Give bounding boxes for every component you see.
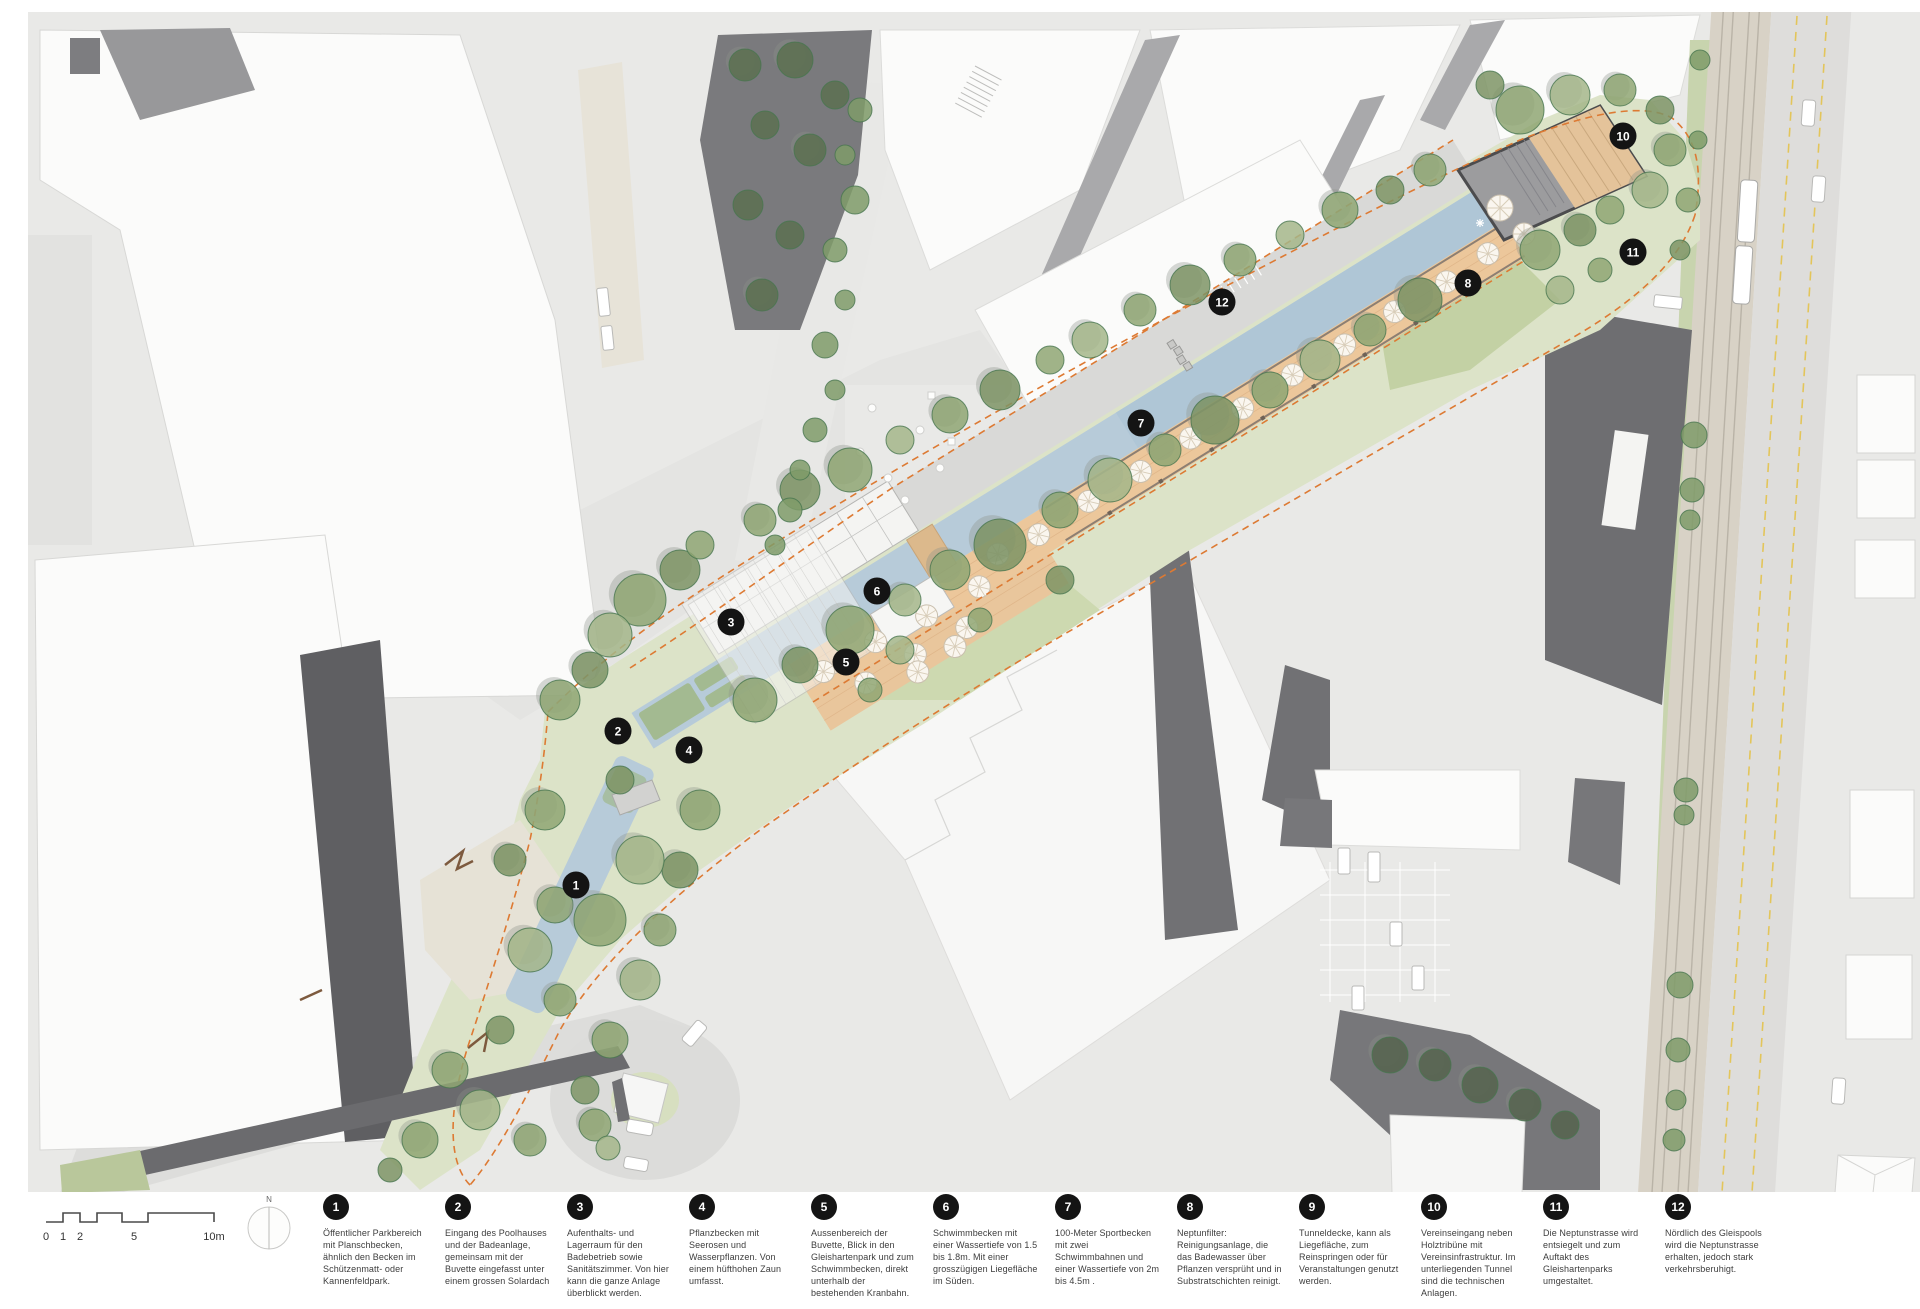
- map-marker-1: 1: [563, 872, 590, 899]
- legend-item-7: 7 100-Meter Sportbecken mit zwei Schwimm…: [1055, 1194, 1161, 1287]
- legend-item-number: 6: [933, 1194, 959, 1220]
- scale-bar: 0 1 2 5 10m: [38, 1192, 238, 1252]
- building-se-top: [1315, 770, 1520, 850]
- map-marker-4: 4: [676, 737, 703, 764]
- building-northwest-roof-block: [70, 38, 100, 74]
- legend-item-text: Aussenbereich der Buvette, Blick in den …: [811, 1227, 917, 1299]
- legend-item-text: Schwimmbecken mit einer Wassertiefe von …: [933, 1227, 1039, 1287]
- legend-item-3: 3 Aufenthalts- und Lagerraum für den Bad…: [567, 1194, 673, 1299]
- legend-item-text: Eingang des Poolhauses und der Badeanlag…: [445, 1227, 551, 1287]
- legend-item-number: 3: [567, 1194, 593, 1220]
- svg-text:7: 7: [1138, 417, 1145, 431]
- legend-item-6: 6 Schwimmbecken mit einer Wassertiefe vo…: [933, 1194, 1039, 1287]
- map-marker-10: 10: [1610, 123, 1637, 150]
- svg-text:3: 3: [728, 616, 735, 630]
- legend-item-2: 2 Eingang des Poolhauses und der Badeanl…: [445, 1194, 551, 1287]
- svg-text:10m: 10m: [203, 1231, 224, 1243]
- north-label: N: [266, 1195, 272, 1204]
- svg-text:5: 5: [843, 656, 850, 670]
- svg-text:10: 10: [1616, 130, 1630, 144]
- svg-text:1: 1: [573, 879, 580, 893]
- se-shadow-left: [1280, 798, 1332, 848]
- legend-item-number: 7: [1055, 1194, 1081, 1220]
- map-marker-12: 12: [1209, 289, 1236, 316]
- site-plan-drawing: 12345678101112: [0, 0, 1920, 1193]
- legend-item-text: 100-Meter Sportbecken mit zwei Schwimmba…: [1055, 1227, 1161, 1287]
- svg-text:8: 8: [1465, 277, 1472, 291]
- legend-item-9: 9 Tunneldecke, kann als Liegefläche, zum…: [1299, 1194, 1405, 1287]
- legend-item-number: 9: [1299, 1194, 1325, 1220]
- svg-text:2: 2: [615, 725, 622, 739]
- svg-text:4: 4: [686, 744, 693, 758]
- legend-item-text: Vereinseingang neben Holztribüne mit Ver…: [1421, 1227, 1527, 1299]
- legend-item-number: 10: [1421, 1194, 1447, 1220]
- svg-text:5: 5: [131, 1231, 137, 1243]
- page-margin-left: [0, 0, 28, 1193]
- legend: 0 1 2 5 10m N 1 Öffentlicher Parkbereich…: [0, 1192, 1920, 1309]
- legend-item-text: Nördlich des Gleispools wird die Neptuns…: [1665, 1227, 1771, 1275]
- legend-item-text: Pflanzbecken mit Seerosen und Wasserpfla…: [689, 1227, 795, 1287]
- site-plan-page: { "map": { "name": "Gleishartenpark / Gl…: [0, 0, 1920, 1309]
- legend-item-text: Aufenthalts- und Lagerraum für den Badeb…: [567, 1227, 673, 1299]
- map-marker-3: 3: [718, 609, 745, 636]
- map-marker-8: 8: [1455, 270, 1482, 297]
- legend-item-number: 5: [811, 1194, 837, 1220]
- legend-item-number: 2: [445, 1194, 471, 1220]
- legend-item-number: 1: [323, 1194, 349, 1220]
- map-marker-6: 6: [864, 578, 891, 605]
- svg-text:1: 1: [60, 1231, 66, 1243]
- legend-item-text: Neptunfilter: Reinigungsanlage, die das …: [1177, 1227, 1283, 1287]
- legend-item-number: 4: [689, 1194, 715, 1220]
- svg-text:11: 11: [1627, 246, 1640, 260]
- svg-text:0: 0: [43, 1231, 49, 1243]
- legend-item-text: Die Neptunstrasse wird entsiegelt und zu…: [1543, 1227, 1649, 1287]
- legend-item-12: 12 Nördlich des Gleispools wird die Nept…: [1665, 1194, 1771, 1275]
- legend-item-4: 4 Pflanzbecken mit Seerosen und Wasserpf…: [689, 1194, 795, 1287]
- legend-item-number: 12: [1665, 1194, 1691, 1220]
- scale-labels: 0 1 2 5 10m: [43, 1231, 225, 1243]
- legend-item-number: 8: [1177, 1194, 1203, 1220]
- site-plan-map: 12345678101112: [0, 0, 1920, 1193]
- legend-item-5: 5 Aussenbereich der Buvette, Blick in de…: [811, 1194, 917, 1299]
- svg-text:12: 12: [1215, 296, 1229, 310]
- map-marker-5: 5: [833, 649, 860, 676]
- svg-text:2: 2: [77, 1231, 83, 1243]
- legend-item-10: 10 Vereinseingang neben Holztribüne mit …: [1421, 1194, 1527, 1299]
- building-se-bottom: [1390, 1115, 1525, 1193]
- legend-item-1: 1 Öffentlicher Parkbereich mit Planschbe…: [323, 1194, 429, 1287]
- map-marker-11: 11: [1620, 239, 1647, 266]
- page-margin-top: [0, 0, 1920, 12]
- legend-item-text: Öffentlicher Parkbereich mit Planschbeck…: [323, 1227, 429, 1287]
- north-arrow: N: [242, 1192, 298, 1254]
- left-road: [28, 235, 92, 545]
- legend-item-11: 11 Die Neptunstrasse wird entsiegelt und…: [1543, 1194, 1649, 1287]
- legend-item-8: 8 Neptunfilter: Reinigungsanlage, die da…: [1177, 1194, 1283, 1287]
- legend-item-number: 11: [1543, 1194, 1569, 1220]
- map-marker-7: 7: [1128, 410, 1155, 437]
- map-marker-2: 2: [605, 718, 632, 745]
- svg-text:6: 6: [874, 585, 881, 599]
- legend-item-text: Tunneldecke, kann als Liegefläche, zum R…: [1299, 1227, 1405, 1287]
